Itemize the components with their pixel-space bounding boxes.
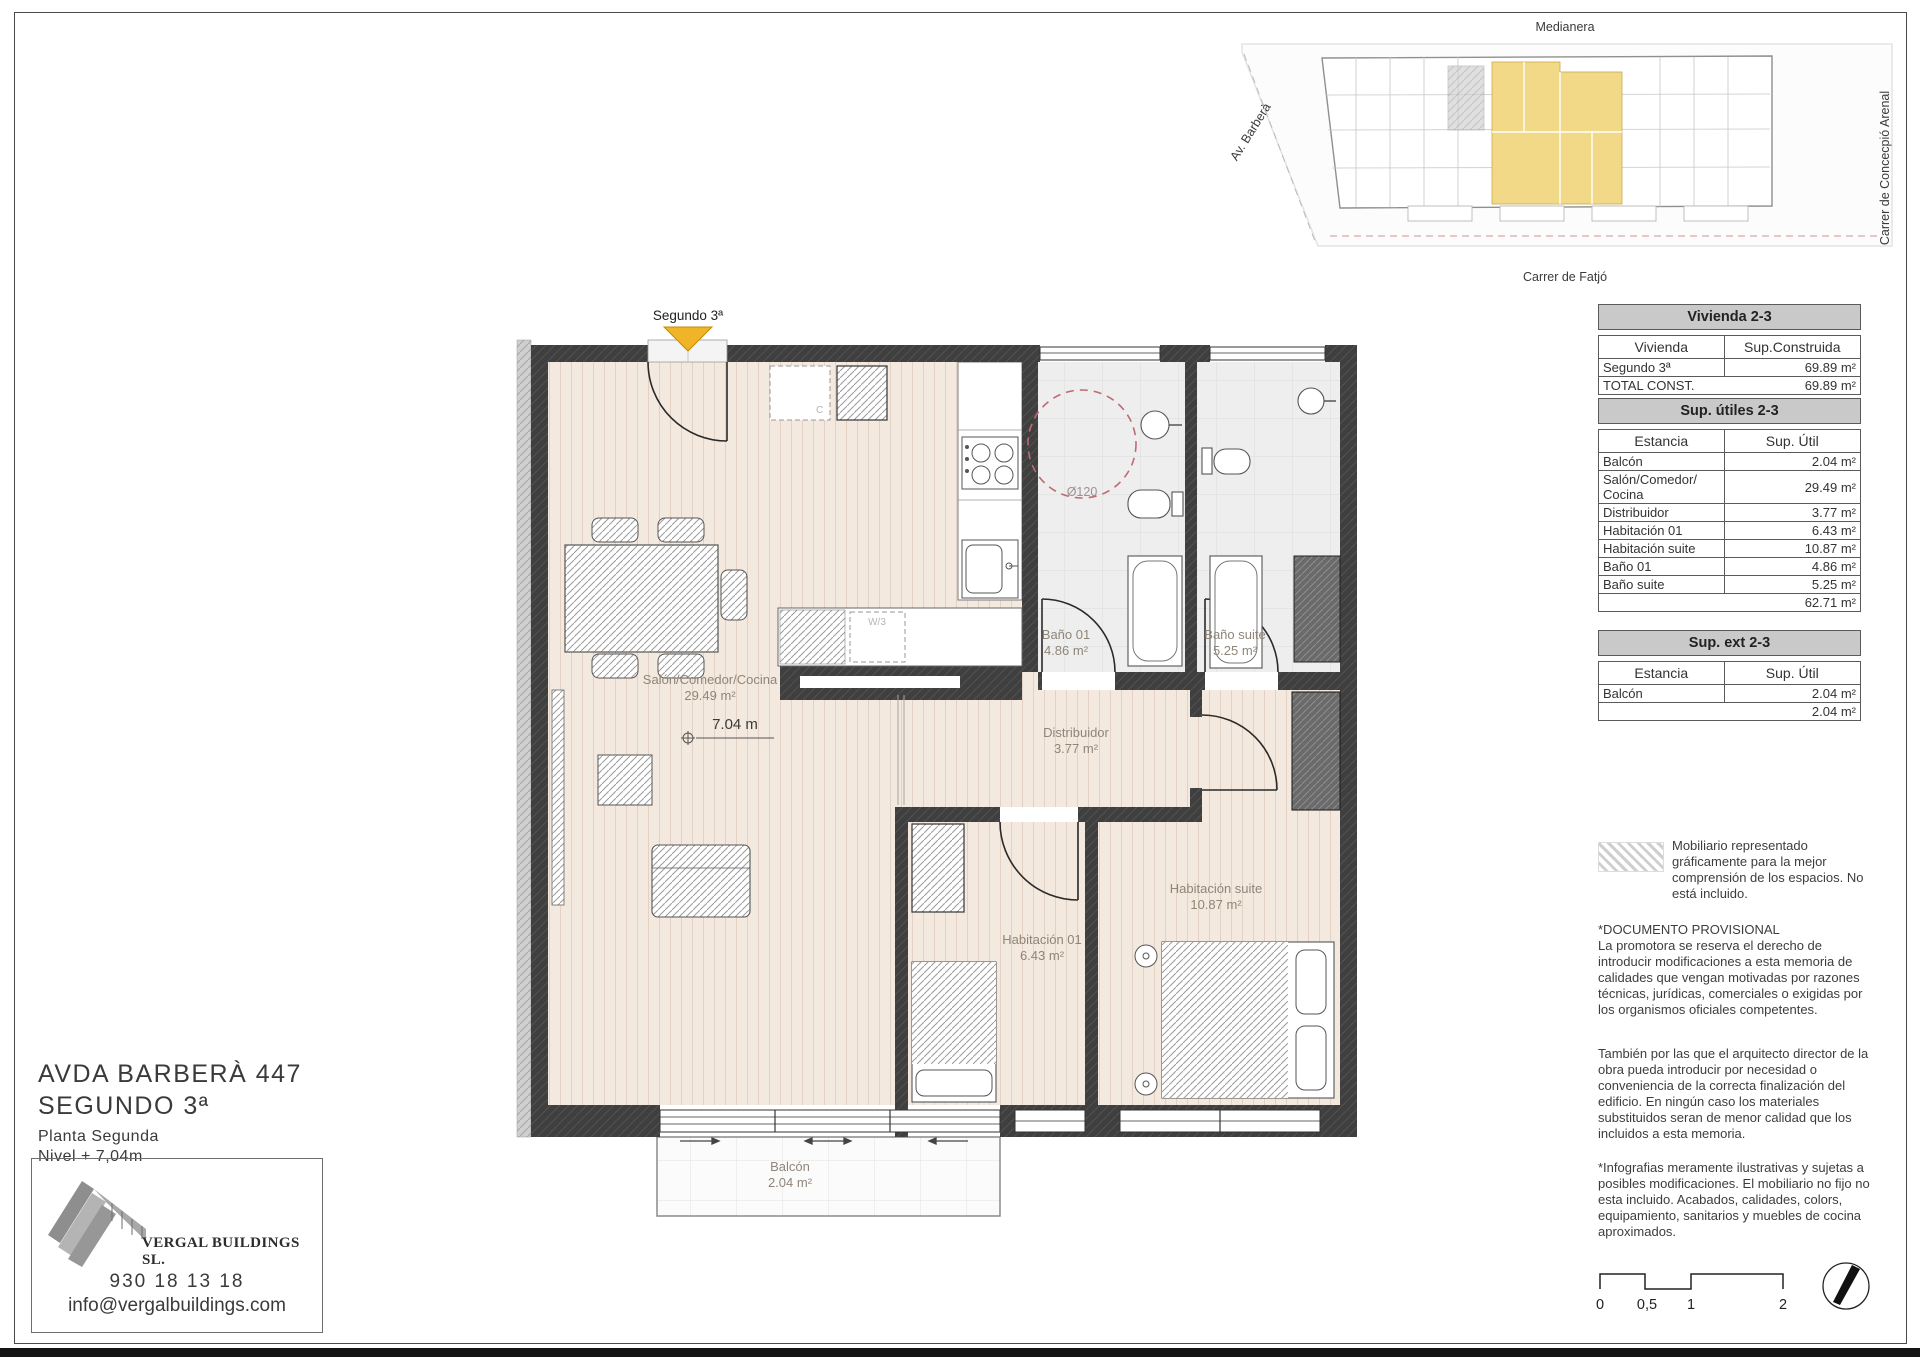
company-email: info@vergalbuildings.com [32, 1295, 322, 1317]
table-vivienda-title: Vivienda 2-3 [1598, 304, 1861, 330]
room-label-bano01: Baño 01 [1042, 627, 1090, 642]
note-provisional-title: *DOCUMENTO PROVISIONAL [1598, 922, 1872, 938]
col-header: Sup.Construida [1724, 336, 1860, 359]
room-label-habsuite: Habitación suite [1170, 881, 1263, 896]
turning-circle-label: Ø120 [1067, 485, 1098, 499]
scale-tick-1: 1 [1687, 1297, 1695, 1313]
table-row-total: 2.04 m² [1599, 703, 1861, 721]
company-logo [46, 1175, 156, 1267]
coffee-table [598, 755, 652, 805]
dining-table [565, 545, 718, 652]
scale-tick-05: 0,5 [1637, 1297, 1657, 1313]
table-row: Habitación 016.43 m² [1599, 522, 1861, 540]
table-row: Balcón2.04 m² [1599, 685, 1861, 703]
highlighted-unit [1492, 62, 1622, 204]
table-row-total: TOTAL CONST.69.89 m² [1599, 377, 1861, 395]
stove [962, 437, 1018, 489]
table-ext-title: Sup. ext 2-3 [1598, 630, 1861, 656]
table-row: Distribuidor3.77 m² [1599, 504, 1861, 522]
room-label-distribuidor: Distribuidor [1043, 725, 1109, 740]
table-ext: Sup. ext 2-3 Estancia Sup. Útil Balcón2.… [1598, 630, 1861, 721]
col-header: Sup. Útil [1724, 662, 1860, 685]
note-arquitecto: También por las que el arquitecto direct… [1598, 1046, 1872, 1142]
furniture-hatch-swatch [1598, 842, 1664, 872]
kitchen-sink [962, 540, 1018, 598]
project-unit: SEGUNDO 3ª [38, 1092, 210, 1121]
room-area-salon: 29.49 m² [684, 688, 736, 703]
table-row: Segundo 3ª69.89 m² [1599, 359, 1861, 377]
toilet [1202, 448, 1250, 474]
room-area-balcon: 2.04 m² [768, 1175, 813, 1190]
scale-tick-2: 2 [1779, 1297, 1787, 1313]
table-row: Balcón2.04 m² [1599, 453, 1861, 471]
floor-plan: C W/3 [517, 308, 1357, 1216]
table-row-total: 62.71 m² [1599, 594, 1861, 612]
room-label-hab01: Habitación 01 [1002, 932, 1082, 947]
entrance-label: Segundo 3ª [653, 308, 724, 323]
street-label-arenal: Carrer de Concecpió Arenal [1878, 91, 1892, 245]
table-row: Baño 014.86 m² [1599, 558, 1861, 576]
note-provisional-body: La promotora se reserva el derecho de in… [1598, 938, 1872, 1018]
room-area-bano01: 4.86 m² [1044, 643, 1089, 658]
note-infografias: *Infografias meramente ilustrativas y su… [1598, 1160, 1872, 1240]
kitchen-peninsula: W/3 [778, 608, 1022, 666]
site-building [1322, 56, 1772, 221]
col-header: Estancia [1599, 662, 1725, 685]
cabinet-letter: C [816, 405, 823, 416]
north-arrow-icon [1823, 1263, 1869, 1309]
kitchen-column [837, 366, 887, 420]
company-box: VERGAL BUILDINGS SL. 930 18 13 18 info@v… [31, 1158, 323, 1333]
room-label-balcon: Balcón [770, 1159, 810, 1174]
room-area-habsuite: 10.87 m² [1190, 897, 1242, 912]
exterior-insulation [517, 340, 531, 1137]
company-phone: 930 18 13 18 [32, 1271, 322, 1293]
wardrobe-suite [1292, 692, 1340, 810]
table-row: Baño suite5.25 m² [1599, 576, 1861, 594]
sheet-bottom-bar [0, 1348, 1920, 1357]
table-utiles-title: Sup. útiles 2-3 [1598, 398, 1861, 424]
street-label-fatjo: Carrer de Fatjó [1523, 270, 1607, 284]
project-floor: Planta Segunda [38, 1128, 159, 1146]
scale-bar: 0 0,5 1 2 [1596, 1274, 1787, 1313]
project-address: AVDA BARBERÀ 447 [38, 1060, 302, 1089]
dimension-text: 7.04 m [712, 716, 758, 733]
col-header: Vivienda [1599, 336, 1725, 359]
washer-label: W/3 [868, 617, 886, 628]
duct-column [1294, 556, 1340, 662]
table-utiles: Sup. útiles 2-3 Estancia Sup. Útil Balcó… [1598, 398, 1861, 612]
balcony-sliding-door [660, 1110, 1000, 1132]
balcony [657, 1137, 1000, 1216]
room-label-salon: Salón/Comedor/Cocina [643, 672, 778, 687]
street-label-medianera: Medianera [1535, 20, 1594, 34]
site-plan: Medianera Av. Barberà Carrer de Concecpi… [1227, 20, 1892, 284]
media-unit [552, 690, 564, 905]
toilet [1128, 490, 1183, 518]
table-vivienda: Vivienda 2-3 Vivienda Sup.Construida Seg… [1598, 304, 1861, 395]
company-name: VERGAL BUILDINGS SL. [142, 1235, 322, 1269]
room-area-distribuidor: 3.77 m² [1054, 741, 1099, 756]
plan-sheet: Medianera Av. Barberà Carrer de Concecpi… [0, 0, 1920, 1357]
single-bed [912, 962, 996, 1102]
col-header: Sup. Útil [1724, 430, 1860, 453]
sofa [652, 845, 750, 917]
table-row: Salón/Comedor/ Cocina29.49 m² [1599, 471, 1861, 504]
bathtub [1128, 556, 1182, 666]
table-row: Habitación suite10.87 m² [1599, 540, 1861, 558]
col-header: Estancia [1599, 430, 1725, 453]
scale-tick-0: 0 [1596, 1297, 1604, 1313]
room-area-hab01: 6.43 m² [1020, 948, 1065, 963]
room-area-banosuite: 5.25 m² [1213, 643, 1258, 658]
room-label-banosuite: Baño suite [1204, 627, 1265, 642]
wardrobe [912, 824, 964, 912]
double-bed [1162, 942, 1334, 1098]
note-mobiliario: Mobiliario representado gráficamente par… [1672, 838, 1872, 902]
street-label-barbera: Av. Barberà [1227, 101, 1273, 163]
stair-core [1448, 66, 1484, 130]
